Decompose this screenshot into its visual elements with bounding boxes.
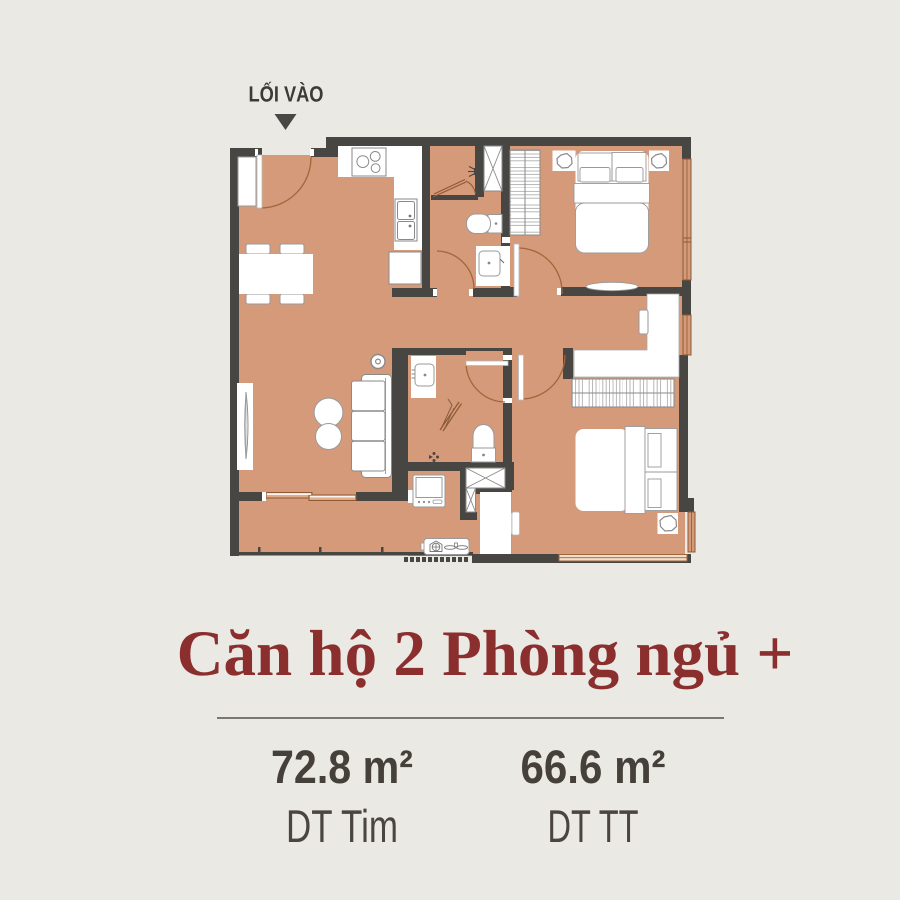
svg-text:LỐI VÀO: LỐI VÀO bbox=[249, 82, 324, 107]
svg-text:Căn hộ 2 Phòng ngủ +: Căn hộ 2 Phòng ngủ + bbox=[177, 618, 794, 690]
svg-text:DT Tim: DT Tim bbox=[286, 800, 398, 852]
svg-text:DT TT: DT TT bbox=[548, 800, 639, 852]
svg-text:66.6 m²: 66.6 m² bbox=[521, 740, 666, 793]
svg-text:72.8 m²: 72.8 m² bbox=[271, 740, 413, 793]
